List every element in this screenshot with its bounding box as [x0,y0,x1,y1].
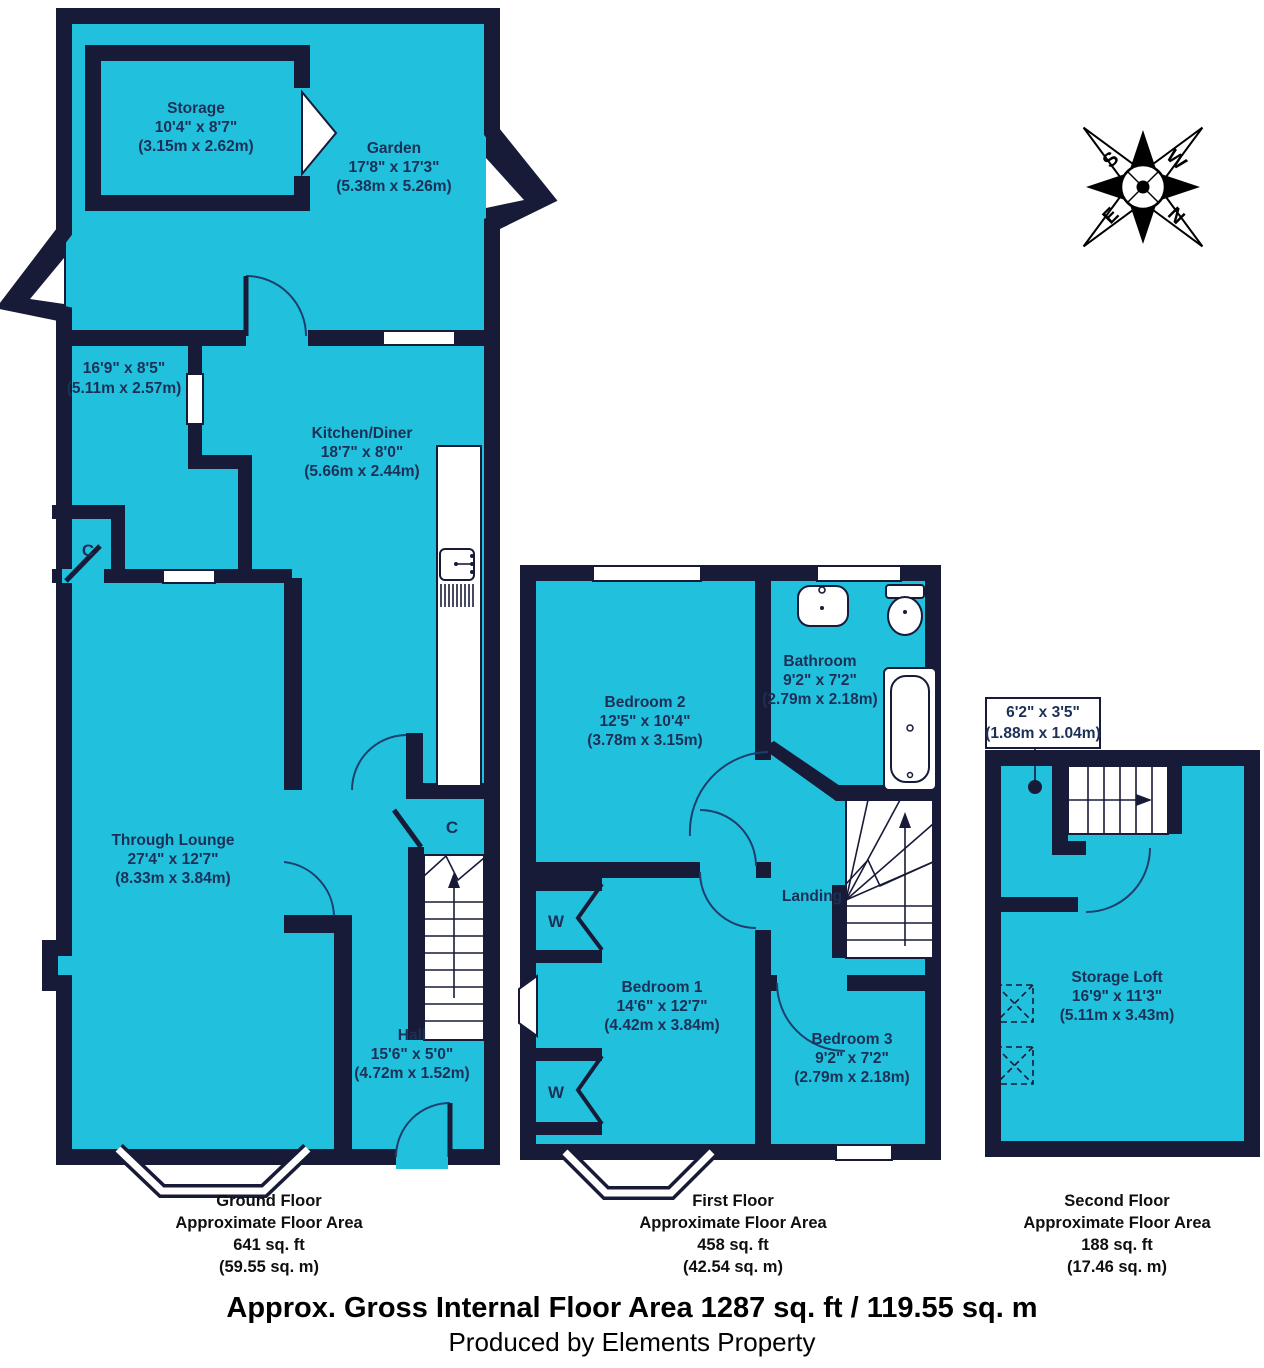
svg-text:Storage: Storage [167,100,225,117]
first-floor-caption: First Floor Approximate Floor Area 458 s… [639,1192,827,1276]
svg-text:(17.46 sq. m): (17.46 sq. m) [1067,1258,1167,1276]
sink-basin-icon [798,586,848,626]
svg-text:641 sq. ft: 641 sq. ft [233,1236,305,1254]
svg-text:27'4" x 12'7": 27'4" x 12'7" [127,851,218,868]
svg-text:Ground Floor: Ground Floor [216,1192,322,1210]
svg-text:(59.55 sq. m): (59.55 sq. m) [219,1258,319,1276]
room-label-kitchen: Kitchen/Diner 18'7" x 8'0" (5.66m x 2.44… [304,425,419,480]
footer: Approx. Gross Internal Floor Area 1287 s… [226,1292,1037,1357]
svg-text:Hall: Hall [398,1027,426,1044]
svg-text:Bedroom 1: Bedroom 1 [622,979,703,996]
svg-text:15'6" x 5'0": 15'6" x 5'0" [371,1046,453,1063]
svg-text:(42.54 sq. m): (42.54 sq. m) [683,1258,783,1276]
svg-text:Approximate Floor Area: Approximate Floor Area [1023,1214,1211,1232]
closet1-label: C [82,541,94,560]
wardrobe1-label: W [548,912,565,931]
svg-text:Second Floor: Second Floor [1064,1192,1170,1210]
svg-text:9'2" x 7'2": 9'2" x 7'2" [815,1050,889,1067]
svg-text:(3.15m x 2.62m): (3.15m x 2.62m) [138,138,253,155]
svg-text:16'9" x 8'5": 16'9" x 8'5" [83,360,165,377]
kitchen-counter [437,446,481,786]
svg-text:6'2" x 3'5": 6'2" x 3'5" [1006,704,1080,721]
bedroom3-window [836,1145,892,1160]
svg-text:17'8" x 17'3": 17'8" x 17'3" [348,159,439,176]
svg-text:(2.79m x 2.18m): (2.79m x 2.18m) [794,1069,909,1086]
first-stairs-icon [832,800,933,958]
svg-text:188 sq. ft: 188 sq. ft [1081,1236,1153,1254]
footer-area-total: Approx. Gross Internal Floor Area 1287 s… [226,1292,1037,1324]
svg-text:Bathroom: Bathroom [783,653,856,670]
svg-text:(8.33m x 3.84m): (8.33m x 3.84m) [115,870,230,887]
svg-text:Approximate Floor Area: Approximate Floor Area [639,1214,827,1232]
room-label-lounge: Through Lounge 27'4" x 12'7" (8.33m x 3.… [111,832,234,887]
compass-rose: S W E N [1024,68,1262,306]
garden-gate-left [8,230,66,318]
svg-text:(1.88m x 1.04m): (1.88m x 1.04m) [985,725,1100,742]
bathtub-icon [884,668,936,790]
lounge-top-window [163,570,215,583]
svg-text:Approximate Floor Area: Approximate Floor Area [175,1214,363,1232]
svg-text:First Floor: First Floor [692,1192,774,1210]
kitchen-window [383,331,455,345]
svg-text:16'9" x 11'3": 16'9" x 11'3" [1072,988,1162,1005]
svg-text:Bedroom 2: Bedroom 2 [605,694,686,711]
room-label-bedroom2: Bedroom 2 12'5" x 10'4" (3.78m x 3.15m) [587,694,702,749]
svg-text:Landing: Landing [782,888,842,905]
ground-floor-plan: C C [8,16,549,1191]
svg-text:9'2" x 7'2": 9'2" x 7'2" [783,672,857,689]
svg-text:Through Lounge: Through Lounge [111,832,234,849]
second-floor-plan: 6'2" x 3'5" (1.88m x 1.04m) Storage Loft… [985,698,1252,1149]
floorplan-page: C C [0,0,1264,1368]
ground-stairs-icon [408,847,484,1040]
svg-text:(3.78m x 3.15m): (3.78m x 3.15m) [587,732,702,749]
svg-text:(4.42m x 3.84m): (4.42m x 3.84m) [604,1017,719,1034]
bedroom2-window [593,566,701,581]
svg-text:Garden: Garden [367,140,421,157]
sink-icon [440,549,474,607]
svg-text:Kitchen/Diner: Kitchen/Diner [312,425,413,442]
first-floor-plan: W W Bedroom 2 12'5" x 10'4" [519,565,936,1193]
svg-text:(2.79m x 2.18m): (2.79m x 2.18m) [762,691,877,708]
footer-credit: Produced by Elements Property [448,1327,815,1357]
svg-text:18'7" x 8'0": 18'7" x 8'0" [321,444,403,461]
svg-text:Storage Loft: Storage Loft [1071,969,1162,986]
reception-window [187,374,203,424]
second-floor-caption: Second Floor Approximate Floor Area 188 … [1023,1192,1211,1276]
svg-text:(5.38m x 5.26m): (5.38m x 5.26m) [336,178,451,195]
svg-text:(5.11m x 3.43m): (5.11m x 3.43m) [1060,1007,1175,1024]
svg-text:12'5" x 10'4": 12'5" x 10'4" [599,713,690,730]
svg-text:(5.11m x 2.57m): (5.11m x 2.57m) [67,380,182,397]
svg-text:(5.66m x 2.44m): (5.66m x 2.44m) [304,463,419,480]
ground-floor-caption: Ground Floor Approximate Floor Area 641 … [175,1192,363,1276]
wardrobe2-label: W [548,1083,565,1102]
bathroom-window [817,566,901,581]
svg-text:Bedroom 3: Bedroom 3 [812,1031,893,1048]
garden-gate-right [486,126,549,226]
room-label-storage-loft: Storage Loft 16'9" x 11'3" (5.11m x 3.43… [1060,969,1175,1024]
callout-anchor-dot [1028,780,1042,794]
room-label-landing: Landing [782,888,842,905]
floor-plan-svg: C C [0,0,1264,1368]
svg-text:(4.72m x 1.52m): (4.72m x 1.52m) [354,1065,469,1082]
svg-text:10'4" x 8'7": 10'4" x 8'7" [155,119,237,136]
svg-text:458 sq. ft: 458 sq. ft [697,1236,769,1254]
svg-text:14'6" x 12'7": 14'6" x 12'7" [616,998,707,1015]
closet2-label: C [446,818,458,837]
toilet-icon [886,585,924,635]
room-label-bedroom1: Bedroom 1 14'6" x 12'7" (4.42m x 3.84m) [604,979,719,1034]
